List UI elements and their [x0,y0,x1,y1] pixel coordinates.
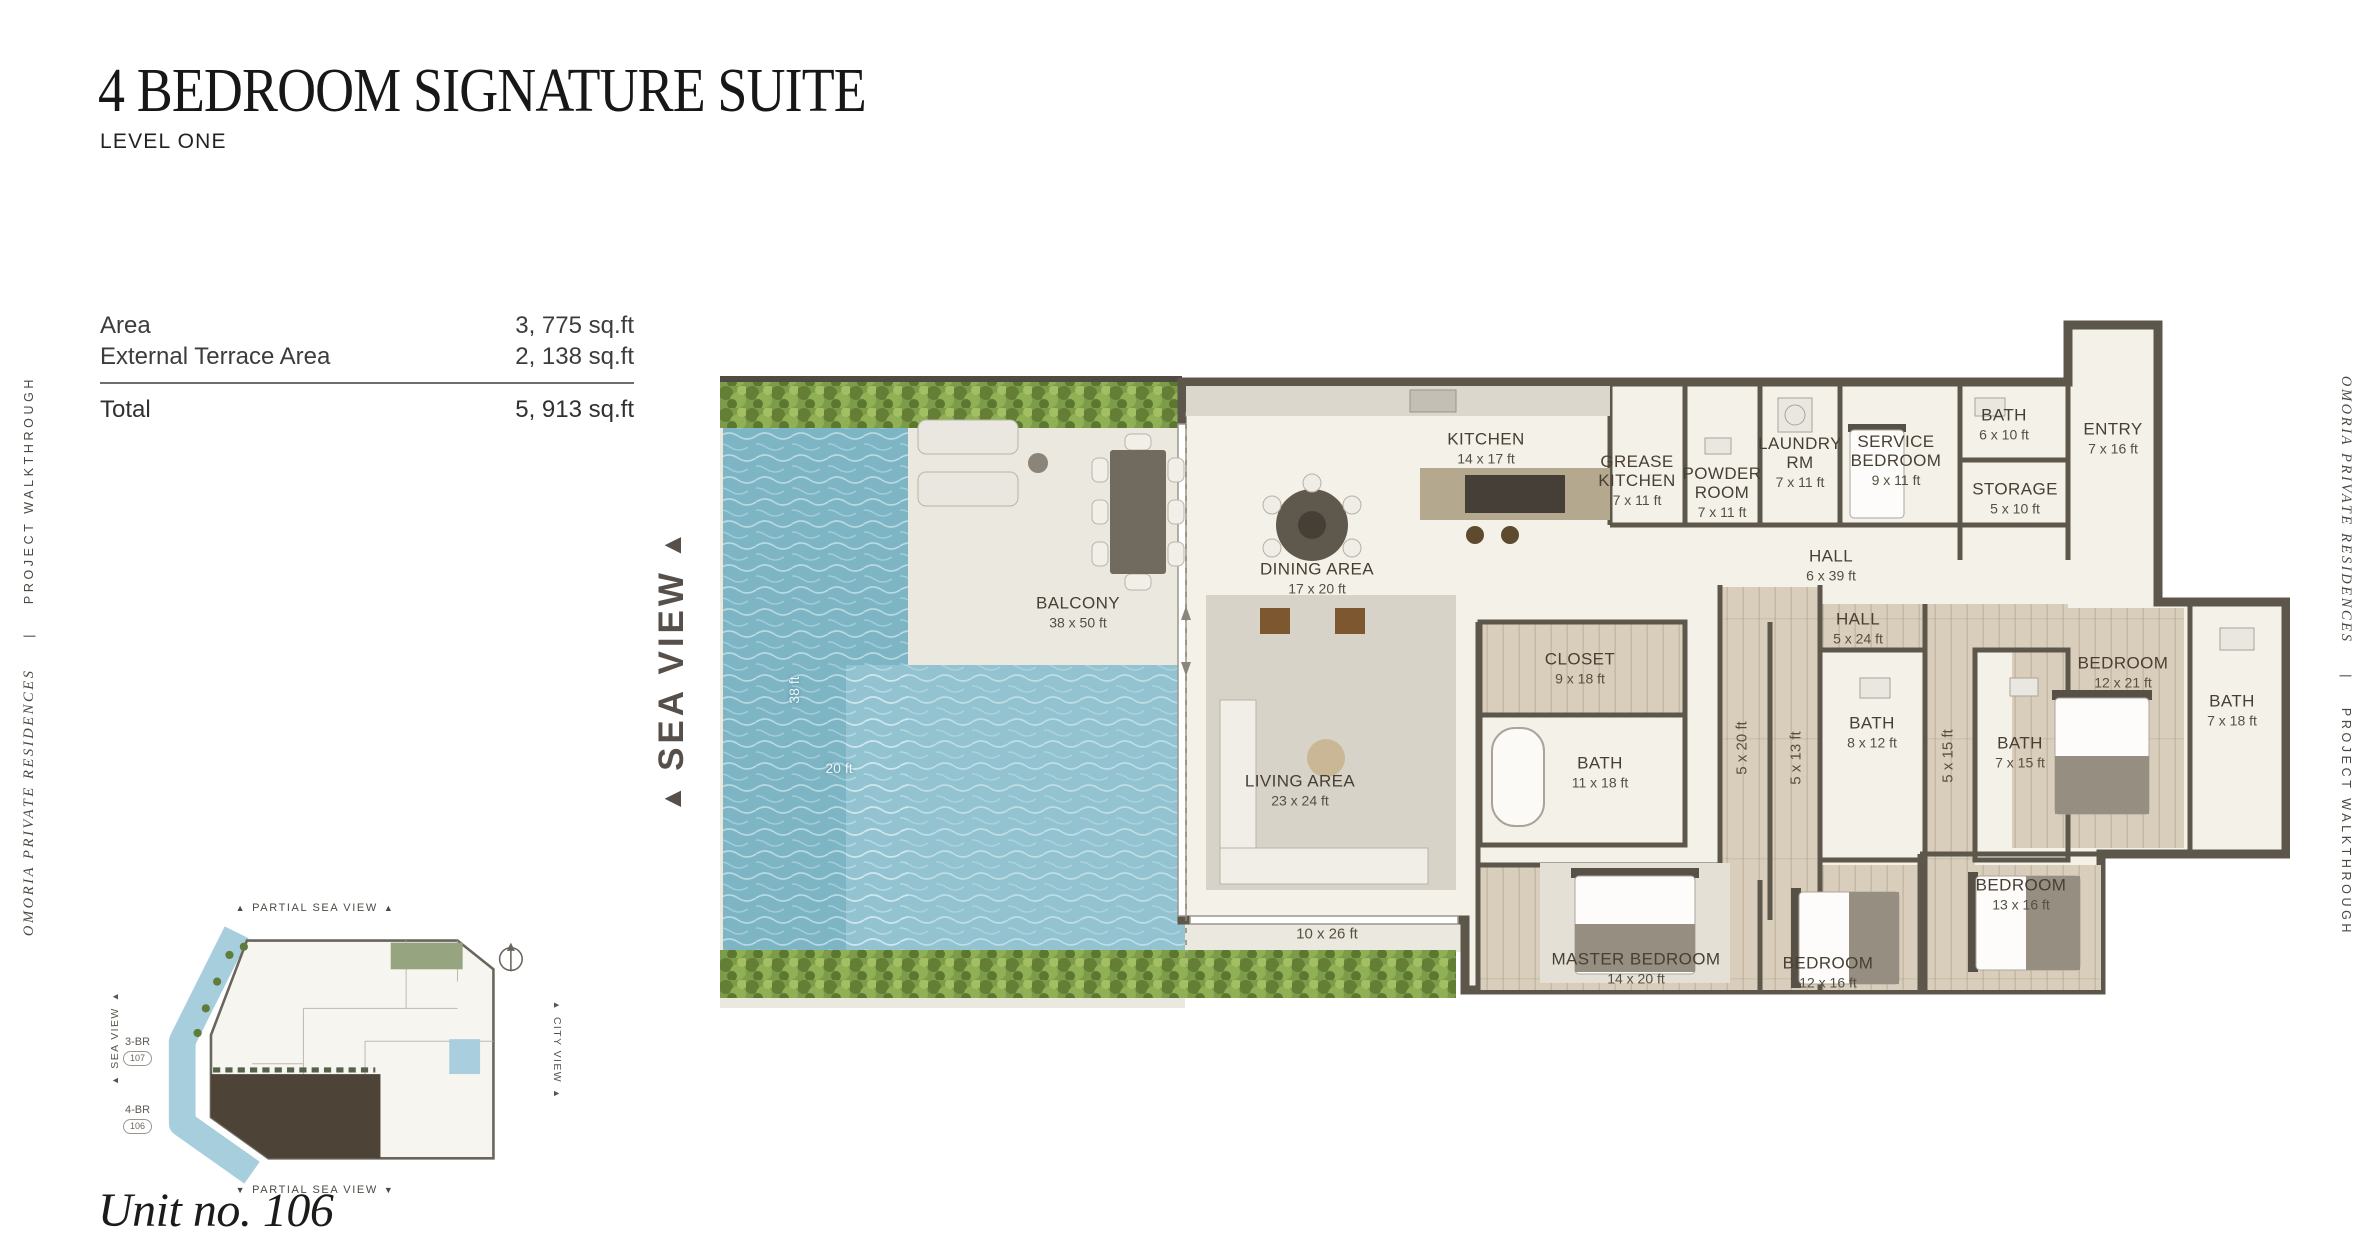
corridor-dim-5x20: 5 x 20 ft [1734,721,1751,774]
living-room-set [1206,595,1456,890]
pool-length-dim: 38 ft [786,676,802,703]
area-label: Area [100,310,151,341]
corridor-dim-5x15: 5 x 15 ft [1940,729,1957,782]
separator: | [2339,674,2354,677]
fence-line [720,376,1182,382]
right-edge-caption: OMORIA PRIVATE RESIDENCES | PROJECT WALK… [2335,346,2355,966]
triangle-up-icon: ▲ [236,903,247,913]
total-value: 5, 913 sq.ft [515,393,634,427]
unit-number-badge: 106 [123,1119,152,1134]
terrace-dim-10x26: 10 x 26 ft [1296,926,1358,943]
terrace-area-row: External Terrace Area 2, 138 sq.ft [100,341,634,372]
compass-icon [500,943,523,972]
terrace-area-value: 2, 138 sq.ft [515,341,634,372]
minimap-unit-3br: 3-BR 107 [123,1036,152,1066]
pool-width-dim: 20 ft [825,760,852,776]
table-divider [100,382,634,384]
minimap-green-roof [391,943,463,970]
triangle-left-icon: ▲ [656,527,687,559]
minimap-unit-4br: 4-BR 106 [123,1104,152,1134]
minimap-city-view-caption: ▲CITY VIEW▲ [551,995,563,1106]
triangle-right-icon: ▲ [552,1001,562,1011]
triangle-left-icon: ▲ [110,1075,120,1085]
minimap-sea-view-caption: ▲SEA VIEW▲ [109,985,121,1091]
left-edge-caption: OMORIA PRIVATE RESIDENCES | PROJECT WALK… [20,346,40,966]
total-label: Total [100,393,151,427]
sea-view-text: SEA VIEW [652,569,691,771]
triangle-down-icon: ▼ [384,1185,395,1195]
area-value: 3, 775 sq.ft [515,310,634,341]
total-row: Total 5, 913 sq.ft [100,393,634,427]
page-title: 4 BEDROOM SIGNATURE SUITE [98,56,866,127]
triangle-up-icon: ▲ [384,903,395,913]
minimap-drawing [147,920,542,1185]
triangle-left-icon: ▲ [110,991,120,1001]
floorplan: KITCHEN 14 x 17 ft GREASE KITCHEN 7 x 11… [720,320,2290,1010]
minimap-inner-pool [449,1039,480,1074]
triangle-left-icon: ▲ [656,781,687,813]
unit-number-title: Unit no. 106 [98,1183,333,1238]
separator: | [21,635,36,638]
brand-text: OMORIA PRIVATE RESIDENCES [21,668,37,936]
hedge-bottom [720,950,1456,998]
area-row: Area 3, 775 sq.ft [100,310,634,341]
tagline-text: PROJECT WALKTHROUGH [22,376,36,604]
site-plan-minimap: ▲PARTIAL SEA VIEW▲ ▲SEA VIEW▲ [105,890,575,1220]
brochure-page: 4 BEDROOM SIGNATURE SUITE LEVEL ONE Area… [0,0,2370,1254]
sea-view-marker: ▲SEA VIEW▲ [652,510,692,830]
floorplan-drawing [720,320,2290,1010]
triangle-right-icon: ▲ [552,1089,562,1099]
brand-text: OMORIA PRIVATE RESIDENCES [2338,376,2354,644]
minimap-top-caption: ▲PARTIAL SEA VIEW▲ [165,902,465,914]
bathtub [1492,728,1544,826]
tagline-text: PROJECT WALKTHROUGH [2339,708,2353,936]
area-table: Area 3, 775 sq.ft External Terrace Area … [100,310,634,427]
level-subtitle: LEVEL ONE [100,130,227,154]
corridor-dim-5x13: 5 x 13 ft [1788,731,1805,784]
terrace-area-label: External Terrace Area [100,341,330,372]
unit-number-badge: 107 [123,1051,152,1066]
